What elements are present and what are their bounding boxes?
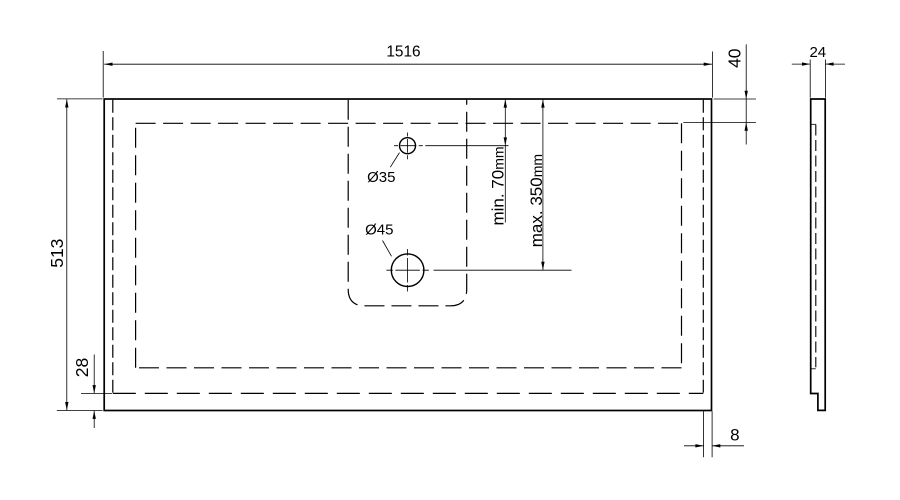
- svg-text:513: 513: [47, 239, 67, 268]
- svg-text:24: 24: [809, 44, 826, 61]
- svg-text:Ø35: Ø35: [367, 169, 395, 186]
- svg-text:min. 70mm: min. 70mm: [489, 146, 508, 225]
- svg-text:1516: 1516: [386, 43, 420, 60]
- svg-text:8: 8: [730, 426, 739, 445]
- svg-text:28: 28: [72, 358, 92, 377]
- svg-text:Ø45: Ø45: [365, 221, 393, 238]
- svg-text:max. 350mm: max. 350mm: [527, 154, 546, 247]
- svg-text:40: 40: [725, 48, 745, 68]
